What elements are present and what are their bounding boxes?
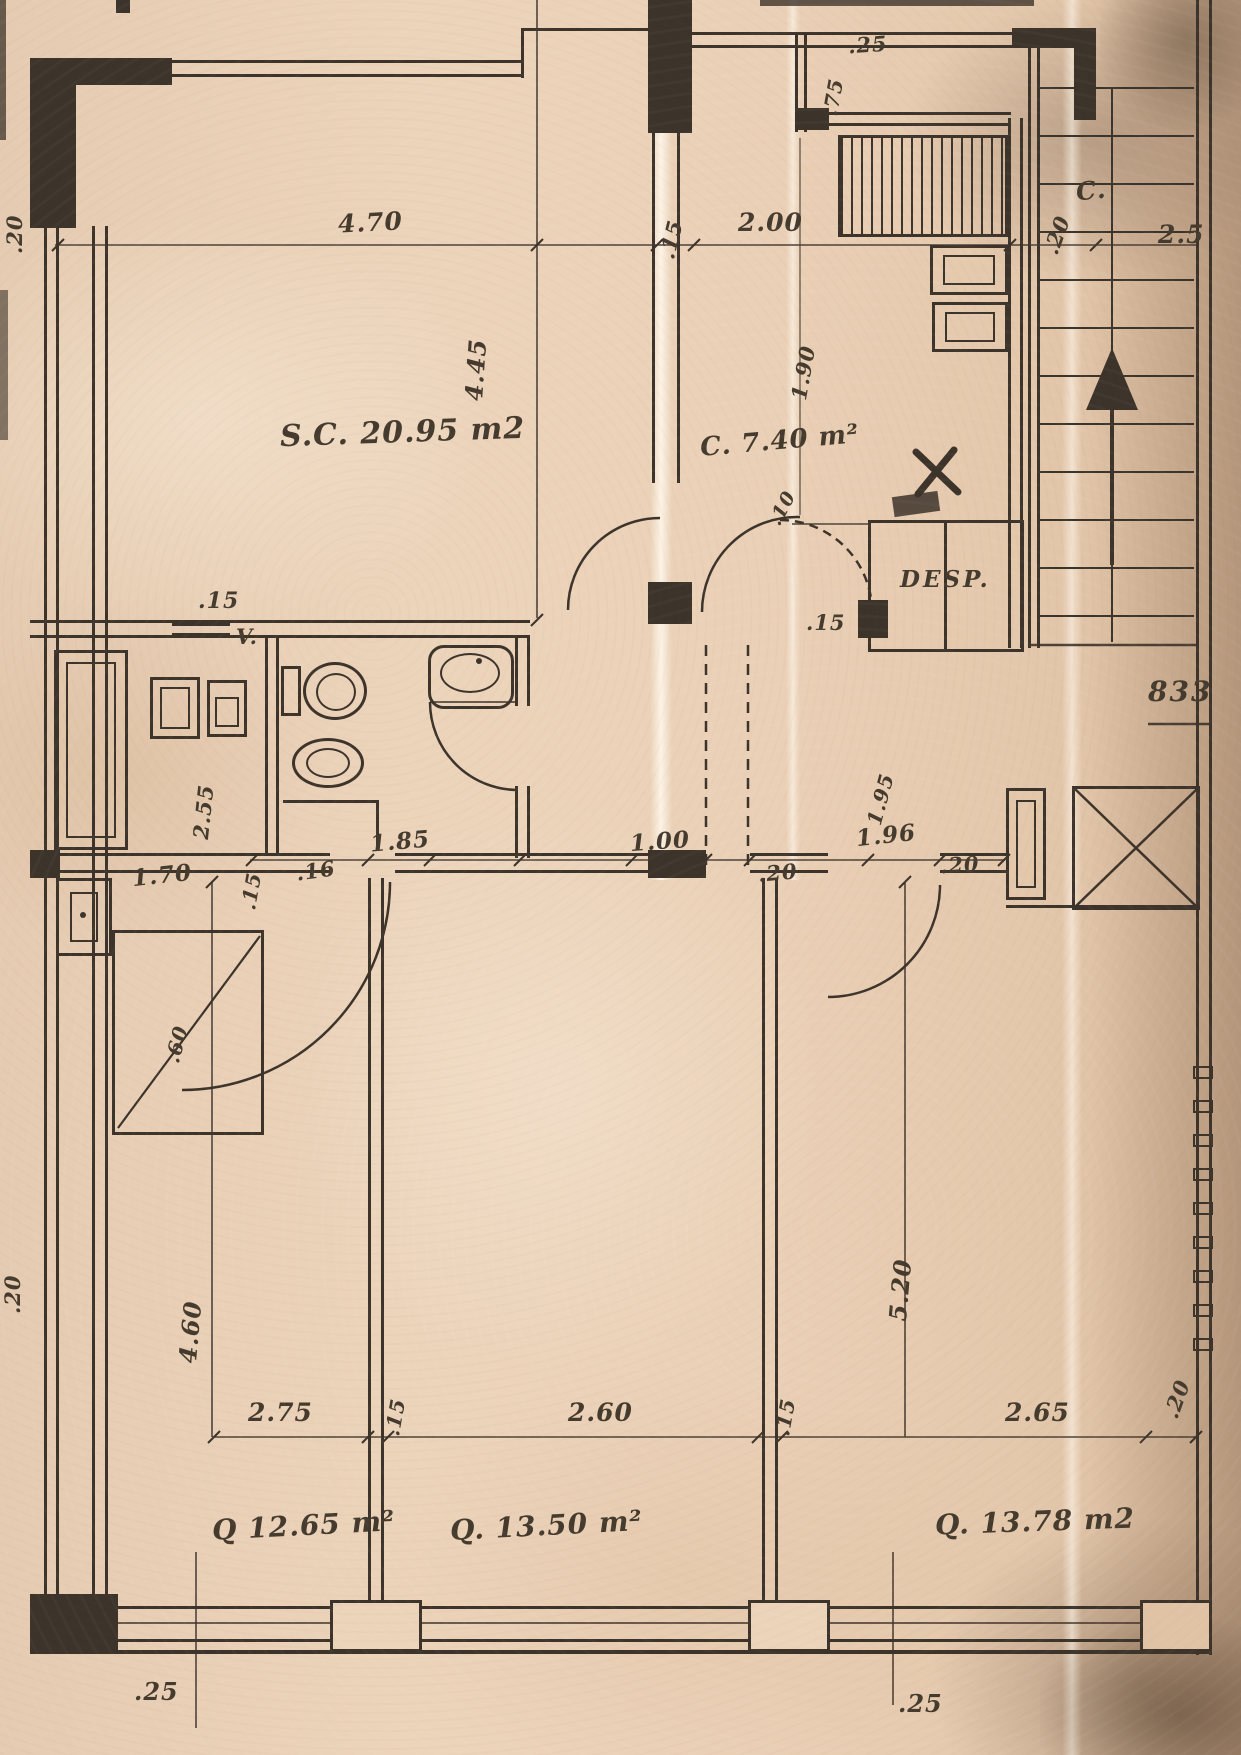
dashed-passage (706, 645, 748, 872)
dim-laundry-width: 1.70 (131, 861, 193, 890)
dim-bottom-left-25: .25 (134, 1680, 179, 1704)
dimension-lines (55, 0, 1210, 1728)
dim-wall-16: .16 (295, 857, 337, 883)
room-label-living: S.C. 20.95 m2 (280, 414, 526, 453)
room-label-hall-c: C. (1075, 176, 1108, 204)
dim-living-height: 4.45 (462, 338, 490, 402)
dim-top-right-25: 2.5 (1158, 222, 1205, 247)
floor-plan: S.C. 20.95 m2 C. 7.40 m² DESP. C. V. Q 1… (0, 0, 1241, 1755)
dim-bed1-width: 2.75 (248, 1400, 313, 1425)
dim-bed2-width: 2.60 (568, 1400, 633, 1425)
door-arcs (182, 517, 940, 1090)
flue-x-icon (916, 450, 958, 494)
dim-kitchen-width: 2.00 (738, 210, 803, 235)
room-label-bedroom3: Q. 13.78 m2 (935, 1505, 1136, 1540)
dim-bottom-mid-25: .25 (898, 1692, 943, 1716)
dim-bath-width: 1.85 (369, 827, 431, 855)
dim-top-75: .75 (820, 77, 846, 118)
dim-bath-top-15: .15 (198, 590, 239, 612)
dim-bath-height: 2.55 (190, 783, 217, 840)
dim-top-left-20: .20 (4, 214, 25, 254)
dim-hall-196: 1.96 (855, 821, 917, 850)
dim-top-25: .25 (847, 33, 888, 57)
dimension-ticks (52, 239, 1202, 1443)
dim-left-lower-20: .20 (2, 1274, 23, 1314)
dim-hall-door-15: .15 (806, 612, 846, 633)
dim-bed3-width: 2.65 (1005, 1400, 1070, 1425)
elevator-x-icon (1075, 789, 1197, 907)
plan-number: 833 (1148, 678, 1212, 706)
dim-bed3-height: 5.20 (886, 1258, 915, 1322)
dim-wall23-15: .15 (772, 1397, 798, 1438)
stairs-up-arrow-icon (1086, 348, 1138, 565)
dim-wall12-15: .15 (382, 1397, 408, 1438)
vent-label: V. (236, 626, 258, 647)
room-label-pantry: DESP. (900, 568, 991, 591)
dim-hall-width: 1.00 (629, 828, 690, 855)
dim-living-width: 4.70 (337, 208, 403, 236)
dim-hall-20a: .20 (757, 860, 798, 884)
dim-hall-20b: .20 (939, 853, 980, 877)
dim-bath-wall-15: .15 (238, 871, 264, 912)
dim-bed1-height: 4.60 (176, 1300, 205, 1364)
